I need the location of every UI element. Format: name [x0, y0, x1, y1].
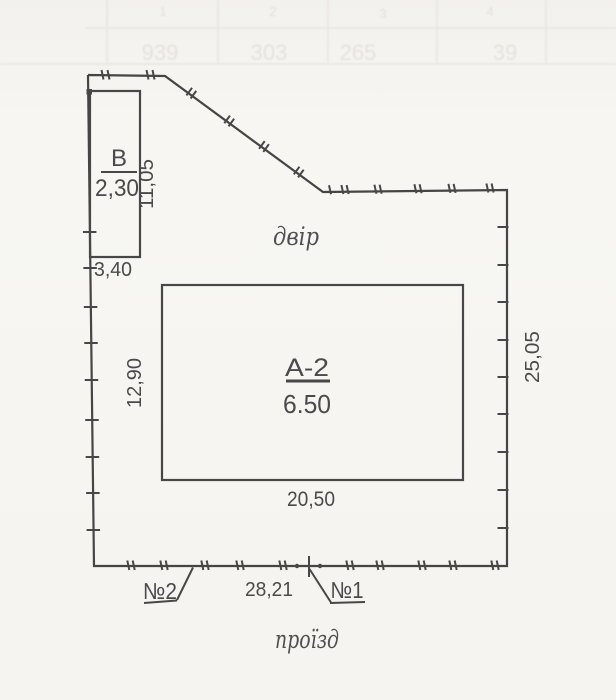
- yard-area-label: двір: [273, 222, 319, 251]
- annex-width-dimension: 3,40: [94, 259, 132, 281]
- main-bottom-dimension: 20,50: [287, 488, 335, 511]
- bleed-header-1: 1: [159, 4, 166, 19]
- bleed-header-4: 4: [486, 4, 493, 19]
- boundary-point-dot: [318, 564, 322, 568]
- bleed-value-4: 39: [493, 40, 517, 65]
- site-plan-drawing: 1 2 3 4 939 303 265 39 В 2,30 11,05 3,40…: [0, 0, 616, 700]
- house1-marker: №1: [331, 577, 364, 603]
- bleed-value-1: 939: [142, 40, 179, 65]
- bleed-header-3: 3: [379, 6, 386, 21]
- annex-height-mark: 2,30: [95, 175, 139, 202]
- plot-bottom-dimension: 28,21: [245, 579, 293, 601]
- main-building-label: А-2: [285, 354, 329, 382]
- passage-area-label: проїзд: [275, 625, 339, 654]
- main-height-mark: 6.50: [283, 389, 331, 419]
- plot-right-dimension: 25,05: [522, 331, 544, 383]
- annex-side-dimension: 11,05: [136, 159, 158, 209]
- boundary-point-dot: [295, 564, 299, 568]
- house1-underline: [330, 602, 365, 603]
- bleed-value-2: 303: [251, 40, 288, 65]
- annex-building-label: В: [111, 145, 127, 172]
- bleed-header-2: 2: [269, 4, 276, 19]
- bleed-value-3: 265: [340, 40, 377, 65]
- main-left-dimension: 12,90: [124, 358, 146, 408]
